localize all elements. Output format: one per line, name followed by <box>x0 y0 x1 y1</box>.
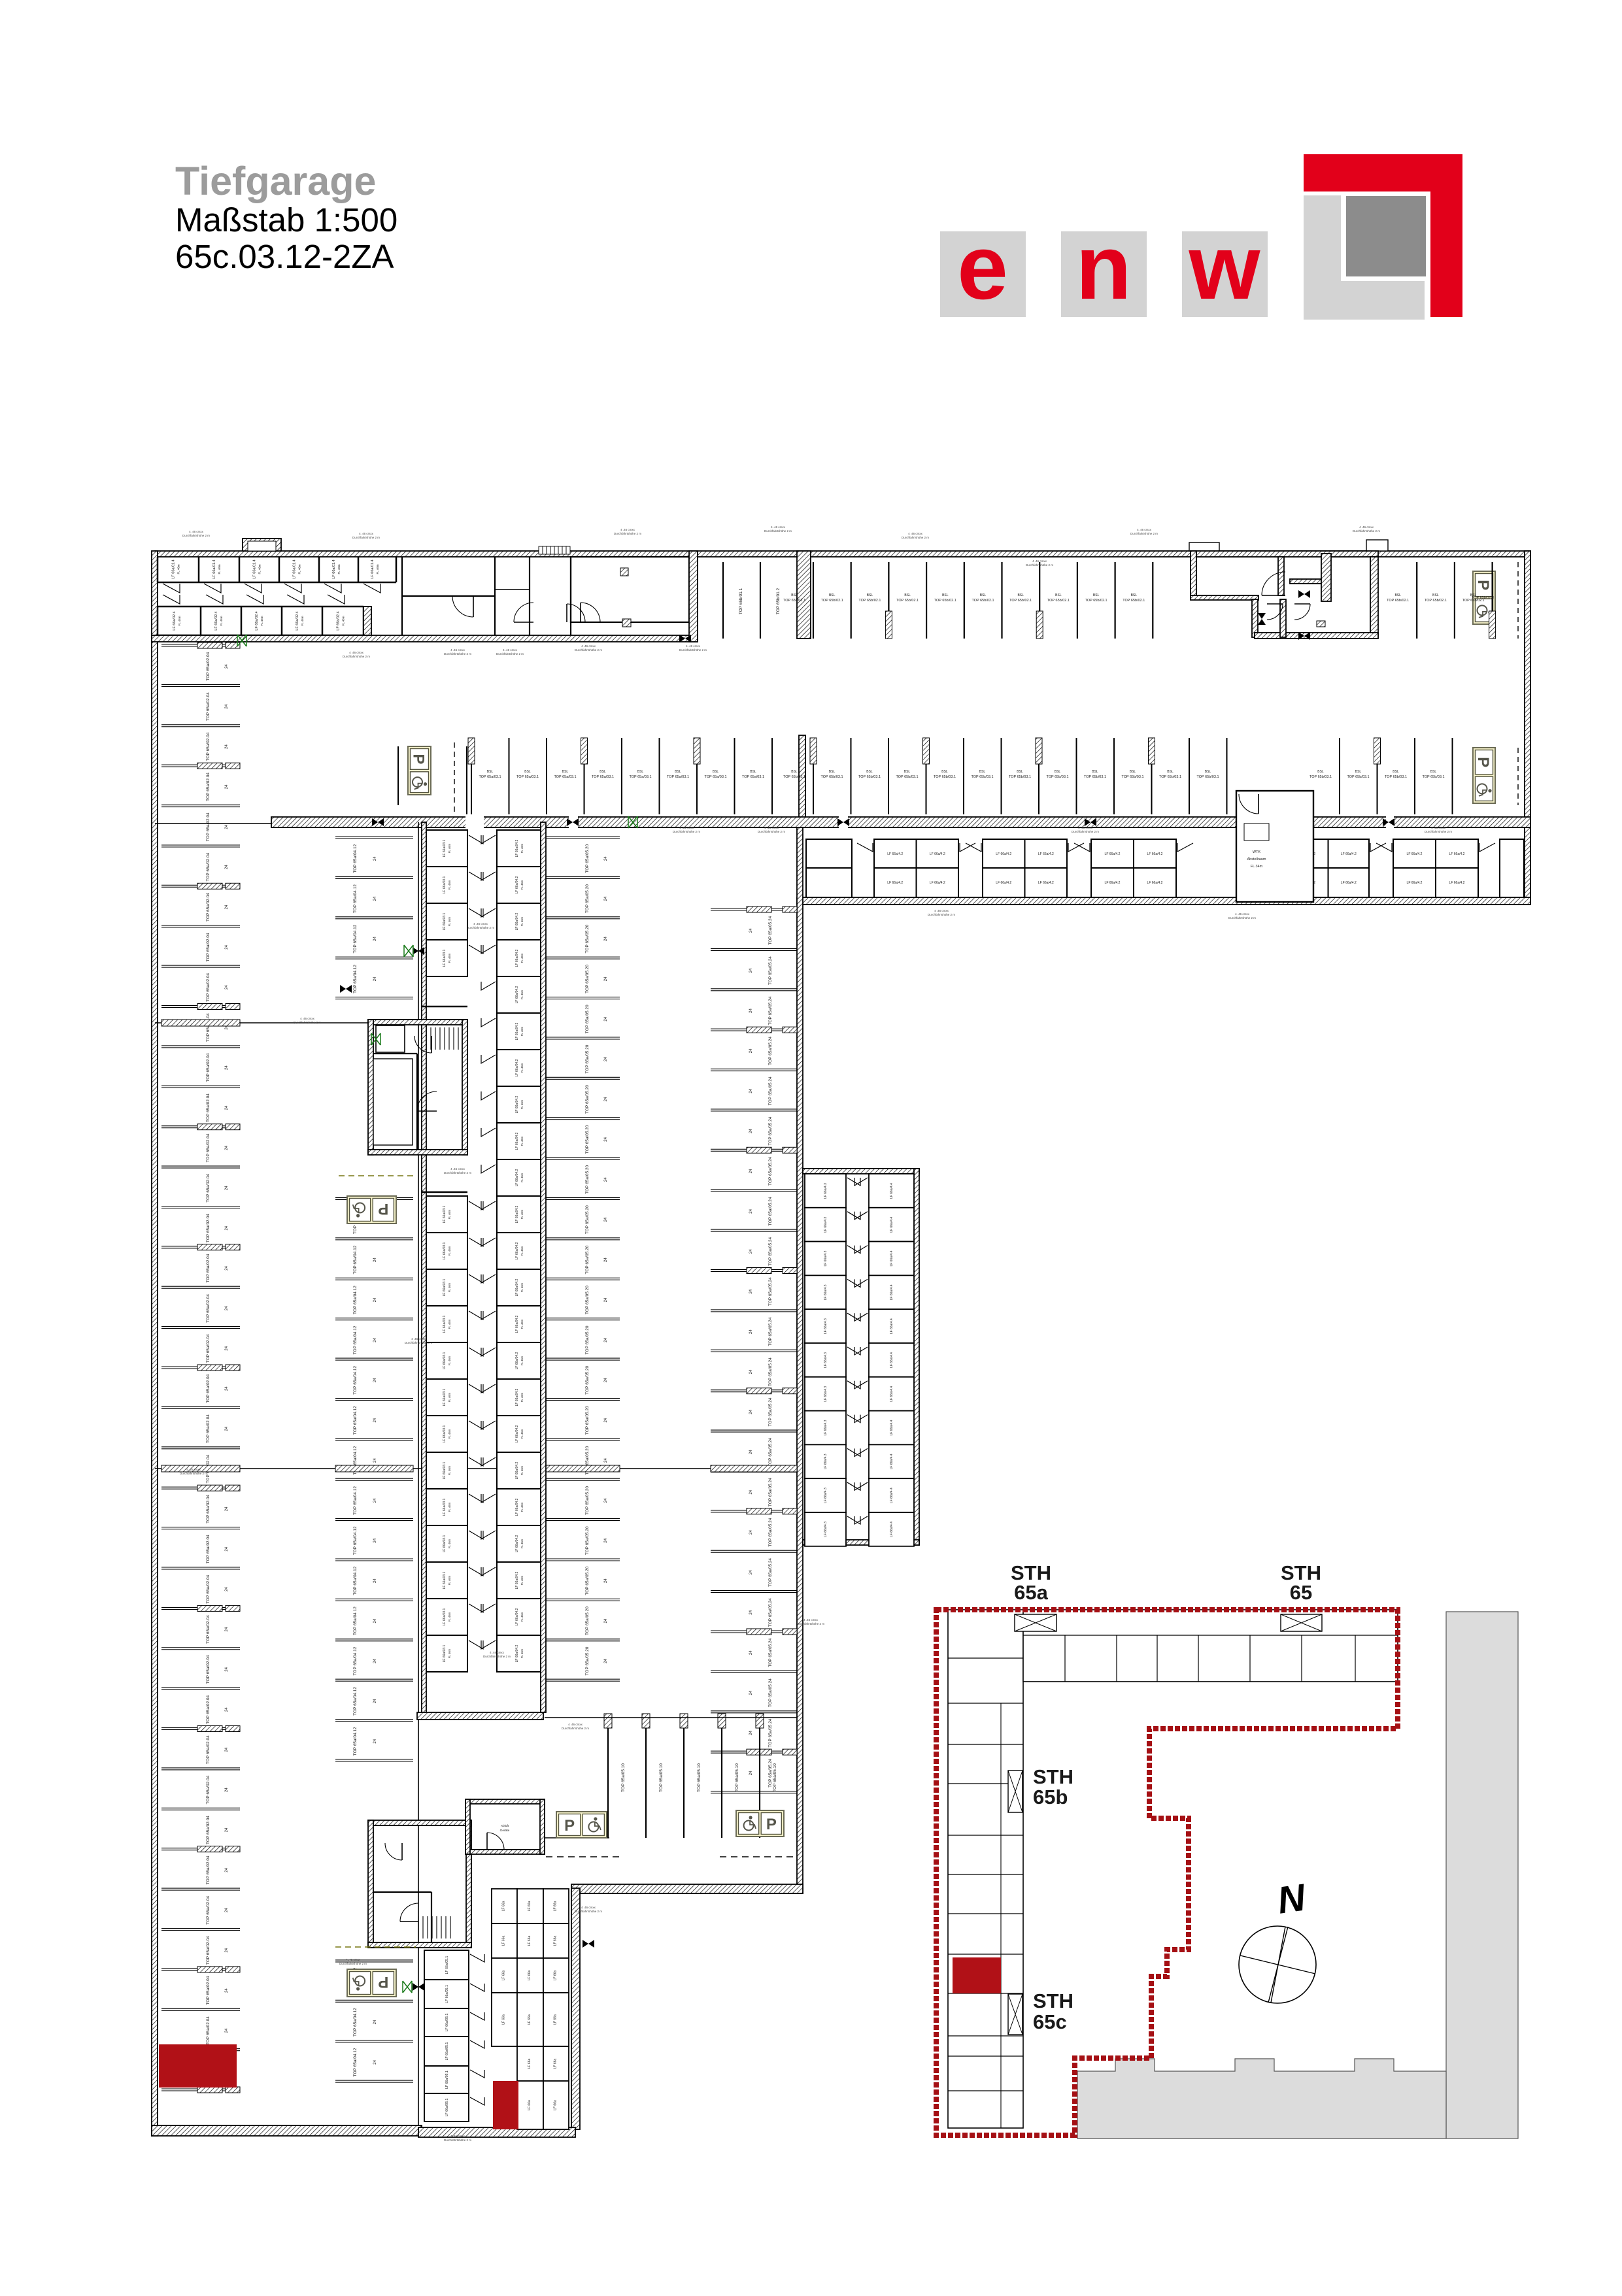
svg-text:4 .46 cmxx: 4 .46 cmxx <box>450 2135 465 2138</box>
svg-text:FL 46m: FL 46m <box>520 1246 524 1256</box>
svg-text:FL 46m: FL 46m <box>520 1173 524 1182</box>
svg-text:BSL: BSL <box>904 770 911 774</box>
svg-text:BSL: BSL <box>1017 770 1023 774</box>
svg-text:Durchfahrtshöhe 2 m: Durchfahrtshöhe 2 m <box>352 536 380 539</box>
svg-text:4 .46 cmxx: 4 .46 cmxx <box>1032 559 1047 563</box>
svg-text:FL 46m: FL 46m <box>520 1429 524 1439</box>
svg-text:TOP 65a/05.24: TOP 65a/05.24 <box>768 1718 773 1747</box>
svg-text:BSL: BSL <box>867 593 873 597</box>
svg-text:TOP 65a/05.20: TOP 65a/05.20 <box>585 1486 590 1515</box>
svg-text:TOP 65a/05.24: TOP 65a/05.24 <box>768 1598 773 1627</box>
svg-text:24: 24 <box>225 1186 229 1190</box>
svg-text:BSL: BSL <box>1092 770 1098 774</box>
svg-text:24: 24 <box>225 944 229 949</box>
svg-text:TOP 65b/03.1: TOP 65b/03.1 <box>1347 775 1369 779</box>
svg-text:24: 24 <box>604 1097 608 1101</box>
svg-text:65c: 65c <box>1033 2010 1067 2033</box>
svg-text:24: 24 <box>749 1249 753 1254</box>
svg-text:24: 24 <box>225 1867 229 1872</box>
svg-text:24: 24 <box>225 664 229 669</box>
svg-text:TOP 65a/05.20: TOP 65a/05.20 <box>585 1085 590 1114</box>
svg-text:LF 66a/4.2: LF 66a/4.2 <box>1449 881 1465 885</box>
svg-text:LF 66a/03.1: LF 66a/03.1 <box>443 1388 447 1406</box>
svg-text:24: 24 <box>373 1578 377 1583</box>
svg-text:BSL: BSL <box>1055 593 1062 597</box>
svg-text:FL 46m: FL 46m <box>520 1539 524 1548</box>
svg-text:FL 46m: FL 46m <box>448 1612 451 1622</box>
svg-text:24: 24 <box>749 1289 753 1293</box>
svg-text:LF 66a: LF 66a <box>502 1971 506 1981</box>
svg-text:TOP 65a/05.24: TOP 65a/05.24 <box>768 1116 773 1145</box>
svg-text:LF 66a/4.2: LF 66a/4.2 <box>1341 881 1357 885</box>
svg-text:Durchfahrtshöhe 2 m: Durchfahrtshöhe 2 m <box>343 655 370 658</box>
svg-text:LF 66a/01.4: LF 66a/01.4 <box>332 559 336 578</box>
svg-text:FL 46m: FL 46m <box>376 564 379 574</box>
svg-text:24: 24 <box>604 1217 608 1222</box>
svg-text:LF 66a/02.4: LF 66a/02.4 <box>255 611 259 630</box>
svg-text:TOP 65a/02.04: TOP 65a/02.04 <box>206 2016 211 2045</box>
svg-text:FL 46m: FL 46m <box>298 564 301 574</box>
svg-text:LF 66a: LF 66a <box>528 1971 532 1981</box>
svg-text:n: n <box>1075 216 1132 318</box>
svg-text:LF 66a/05.1: LF 66a/05.1 <box>445 2099 449 2117</box>
svg-text:LF 66a/04.2: LF 66a/04.2 <box>515 1608 519 1625</box>
svg-text:24: 24 <box>373 1739 377 1743</box>
svg-text:24: 24 <box>749 968 753 973</box>
svg-text:Durchfahrtshöhe 2 m: Durchfahrtshöhe 2 m <box>928 913 955 916</box>
svg-text:TOP 65b/03.1: TOP 65b/03.1 <box>858 775 881 779</box>
svg-text:TOP 65a/05.10: TOP 65a/05.10 <box>697 1763 701 1792</box>
svg-text:BSL: BSL <box>713 770 719 774</box>
svg-text:LF 66a: LF 66a <box>502 1936 506 1946</box>
svg-text:24: 24 <box>749 1731 753 1735</box>
svg-text:FL 46m: FL 46m <box>520 1648 524 1658</box>
svg-text:TOP 65a/05.20: TOP 65a/05.20 <box>585 1566 590 1595</box>
svg-text:TOP 65a/05.24: TOP 65a/05.24 <box>768 1317 773 1346</box>
svg-text:P: P <box>1474 580 1492 590</box>
svg-text:LF 66a/05.1: LF 66a/05.1 <box>445 2071 449 2089</box>
svg-text:24: 24 <box>225 1747 229 1752</box>
svg-text:FL 46m: FL 46m <box>448 1539 451 1548</box>
svg-text:4 .46 cmxx: 4 .46 cmxx <box>359 532 374 535</box>
svg-text:4 .46 cmxx: 4 .46 cmxx <box>186 1468 201 1471</box>
svg-text:24: 24 <box>225 1386 229 1391</box>
svg-text:FL 46m: FL 46m <box>520 1099 524 1109</box>
svg-text:FL 46m: FL 46m <box>260 616 263 625</box>
svg-text:65a: 65a <box>1014 1581 1048 1604</box>
svg-text:24: 24 <box>225 1707 229 1712</box>
svg-text:TOP 65a/05.20: TOP 65a/05.20 <box>585 1646 590 1675</box>
svg-text:4 .46 cmxx: 4 .46 cmxx <box>450 648 465 652</box>
svg-text:LF 66a/04.2: LF 66a/04.2 <box>515 1571 519 1589</box>
svg-text:LF 66a/4.2: LF 66a/4.2 <box>930 881 945 885</box>
svg-text:LF 66a/4.2: LF 66a/4.2 <box>1038 852 1054 856</box>
svg-text:TOP 65a/02.04: TOP 65a/02.04 <box>206 1655 211 1684</box>
svg-text:LF 66a/4.2: LF 66a/4.2 <box>1407 881 1423 885</box>
svg-text:LF 66a/04.2: LF 66a/04.2 <box>515 1132 519 1150</box>
svg-text:TOP 65a/05.20: TOP 65a/05.20 <box>585 1606 590 1635</box>
svg-text:24: 24 <box>373 856 377 861</box>
svg-text:24: 24 <box>225 784 229 789</box>
svg-text:TOP 65b/03.1: TOP 65b/03.1 <box>1046 775 1068 779</box>
svg-text:4 .46 cmxx: 4 .46 cmxx <box>346 1958 361 1961</box>
svg-text:4 .46 cmxx: 4 .46 cmxx <box>300 1017 315 1020</box>
svg-text:LF 66a/01.4: LF 66a/01.4 <box>172 559 176 578</box>
svg-text:LF 66a/02.4: LF 66a/02.4 <box>214 611 218 630</box>
svg-text:TOP 65a/02.04: TOP 65a/02.04 <box>206 1775 211 1804</box>
svg-text:LF 66a/4.3: LF 66a/4.3 <box>824 1318 828 1334</box>
svg-text:24: 24 <box>604 1257 608 1262</box>
svg-text:FL 46m: FL 46m <box>301 616 304 625</box>
svg-text:LF 66a/03.1: LF 66a/03.1 <box>443 1425 447 1442</box>
svg-text:TOP 65b/03.1: TOP 65b/03.1 <box>934 775 956 779</box>
svg-text:TOP 65b/01.1: TOP 65b/01.1 <box>739 588 743 615</box>
svg-text:LF 66a/04.2: LF 66a/04.2 <box>515 1498 519 1516</box>
svg-text:TOP 65a/02.04: TOP 65a/02.04 <box>206 973 211 1001</box>
svg-text:TOP 65a/03.1: TOP 65a/03.1 <box>516 775 539 779</box>
svg-text:BSL: BSL <box>904 593 911 597</box>
svg-text:LF 66a/4.2: LF 66a/4.2 <box>930 852 945 856</box>
svg-text:FL 46m: FL 46m <box>218 564 221 574</box>
svg-text:BSL: BSL <box>524 770 531 774</box>
svg-text:TOP 65b/02.1: TOP 65b/02.1 <box>858 599 881 603</box>
svg-text:LF 66a/4.3: LF 66a/4.3 <box>824 1488 828 1503</box>
svg-text:TOP 65a/03.1: TOP 65a/03.1 <box>742 775 764 779</box>
svg-text:TOP 65a/05.20: TOP 65a/05.20 <box>585 1245 590 1274</box>
svg-text:LF 66a/04.2: LF 66a/04.2 <box>515 986 519 1003</box>
svg-text:TOP 65a/02.04: TOP 65a/02.04 <box>206 1173 211 1202</box>
svg-text:FL 46m: FL 46m <box>520 1063 524 1073</box>
svg-text:Durchfahrtshöhe 2 m: Durchfahrtshöhe 2 m <box>180 1472 207 1475</box>
svg-text:4 .46 cmxx: 4 .46 cmxx <box>349 651 364 654</box>
svg-text:24: 24 <box>225 824 229 829</box>
svg-text:LF 66a/4.2: LF 66a/4.2 <box>996 881 1011 885</box>
svg-text:24: 24 <box>604 976 608 981</box>
svg-text:LF 66a/4.4: LF 66a/4.4 <box>890 1420 894 1435</box>
svg-text:LF 66a/02.4: LF 66a/02.4 <box>173 611 177 630</box>
svg-text:FL 46m: FL 46m <box>520 880 524 890</box>
svg-text:Durchfahrtshöhe 2 m: Durchfahrtshöhe 2 m <box>1228 916 1256 920</box>
svg-text:TOP 65a/02.04: TOP 65a/02.04 <box>206 1334 211 1363</box>
svg-text:Durchfahrtshöhe 2 m: Durchfahrtshöhe 2 m <box>339 1962 367 1965</box>
svg-text:LF 66a/03.1: LF 66a/03.1 <box>443 1571 447 1589</box>
svg-text:FL 46m: FL 46m <box>258 564 262 574</box>
svg-text:LF 66a/4.4: LF 66a/4.4 <box>890 1386 894 1402</box>
svg-text:LF 66a: LF 66a <box>528 1936 532 1946</box>
svg-text:TOP 65a/04.12: TOP 65a/04.12 <box>353 844 358 873</box>
svg-text:24: 24 <box>373 1337 377 1342</box>
svg-text:LF 66a/03.1: LF 66a/03.1 <box>443 1315 447 1333</box>
svg-text:TOP 65a/04.12: TOP 65a/04.12 <box>353 924 358 953</box>
svg-text:TOP 65a/05.20: TOP 65a/05.20 <box>585 884 590 913</box>
svg-text:Abluft: Abluft <box>501 1824 509 1828</box>
svg-text:24: 24 <box>373 976 377 981</box>
svg-text:LF 66a: LF 66a <box>502 1901 506 1912</box>
svg-text:LF 66a: LF 66a <box>554 1901 558 1912</box>
svg-text:TOP 65b/03.1: TOP 65b/03.1 <box>1196 775 1219 779</box>
svg-text:LF 66a/4.2: LF 66a/4.2 <box>1038 881 1054 885</box>
svg-text:24: 24 <box>225 704 229 708</box>
svg-text:BSL: BSL <box>1394 593 1401 597</box>
svg-text:24: 24 <box>225 744 229 749</box>
svg-text:24: 24 <box>604 1498 608 1503</box>
svg-text:P: P <box>378 1973 388 1991</box>
svg-text:TOP 65a/02.04: TOP 65a/02.04 <box>206 1735 211 1764</box>
svg-text:LF 66a/03.1: LF 66a/03.1 <box>443 912 447 930</box>
svg-text:TOP 65a/03.1: TOP 65a/03.1 <box>554 775 576 779</box>
svg-text:TOP 65a/02.04: TOP 65a/02.04 <box>206 893 211 922</box>
svg-text:Tiefgarage: Tiefgarage <box>175 159 376 203</box>
svg-text:FL 46m: FL 46m <box>448 1209 451 1219</box>
svg-text:FL 46m: FL 46m <box>448 1575 451 1585</box>
svg-text:Durchfahrtshöhe 2 m: Durchfahrtshöhe 2 m <box>764 529 792 533</box>
svg-text:FL 46m: FL 46m <box>520 843 524 853</box>
svg-text:LF 66a/04.2: LF 66a/04.2 <box>515 1644 519 1662</box>
svg-text:TOP 65b/02.1: TOP 65b/02.1 <box>1387 599 1409 603</box>
svg-text:24: 24 <box>604 856 608 861</box>
svg-text:LF 66a/4.4: LF 66a/4.4 <box>890 1488 894 1503</box>
svg-text:TOP 65a/05.24: TOP 65a/05.24 <box>768 1157 773 1186</box>
svg-text:LF 66a/4.3: LF 66a/4.3 <box>824 1217 828 1233</box>
svg-text:LF 66a/04.2: LF 66a/04.2 <box>515 1205 519 1223</box>
svg-text:Durchfahrtshöhe 2 m: Durchfahrtshöhe 2 m <box>575 1910 602 1913</box>
svg-text:LF 66a/01.4: LF 66a/01.4 <box>371 559 375 578</box>
svg-text:FL 46m: FL 46m <box>520 1502 524 1512</box>
svg-text:24: 24 <box>225 1988 229 1993</box>
svg-text:LF 66a/4.2: LF 66a/4.2 <box>887 881 903 885</box>
svg-text:BSL: BSL <box>979 770 986 774</box>
svg-text:TOP 65b/03.1: TOP 65b/03.1 <box>1084 775 1106 779</box>
svg-text:TOP 65a/05.24: TOP 65a/05.24 <box>768 1558 773 1587</box>
svg-text:65b: 65b <box>1033 1786 1068 1808</box>
svg-text:FL 46m: FL 46m <box>520 1356 524 1365</box>
svg-text:TOP 65a/05.24: TOP 65a/05.24 <box>768 1678 773 1707</box>
svg-text:TOP 65a/05.10: TOP 65a/05.10 <box>621 1763 626 1792</box>
svg-text:4 .46 cmxx: 4 .46 cmxx <box>568 1723 583 1726</box>
svg-text:24: 24 <box>225 1788 229 1792</box>
svg-text:TOP 65a/05.20: TOP 65a/05.20 <box>585 965 590 993</box>
svg-text:TOP 65a/05.24: TOP 65a/05.24 <box>768 996 773 1025</box>
svg-text:LF 66a/4.3: LF 66a/4.3 <box>824 1420 828 1435</box>
svg-text:FL 46m: FL 46m <box>520 1319 524 1329</box>
svg-text:Durchfahrtshöhe 2 m: Durchfahrtshöhe 2 m <box>444 2138 471 2142</box>
svg-text:24: 24 <box>373 1699 377 1703</box>
svg-text:24: 24 <box>225 1667 229 1671</box>
svg-text:BSL: BSL <box>1432 593 1439 597</box>
svg-text:TOP 65a/02.04: TOP 65a/02.04 <box>206 1414 211 1443</box>
svg-text:LF 66a/01.4: LF 66a/01.4 <box>253 559 257 578</box>
svg-text:BSL: BSL <box>1167 770 1174 774</box>
svg-text:TOP 65a/05.20: TOP 65a/05.20 <box>585 1125 590 1154</box>
svg-text:TOP 65a/05.24: TOP 65a/05.24 <box>768 1518 773 1546</box>
svg-text:24: 24 <box>749 1771 753 1775</box>
svg-text:24: 24 <box>373 2059 377 2064</box>
svg-text:FL 46m: FL 46m <box>520 1026 524 1036</box>
svg-text:TOP 65a/02.04: TOP 65a/02.04 <box>206 773 211 801</box>
svg-text:BSL: BSL <box>941 770 948 774</box>
svg-text:LF 66a/4.4: LF 66a/4.4 <box>890 1522 894 1537</box>
svg-text:Durchfahrtshöhe 2 m: Durchfahrtshöhe 2 m <box>562 1727 589 1730</box>
svg-text:4 .46 cmxx: 4 .46 cmxx <box>764 826 779 829</box>
svg-text:P: P <box>564 1817 575 1835</box>
svg-text:TOP 65b/02.1: TOP 65b/02.1 <box>783 599 805 603</box>
svg-text:24: 24 <box>225 1506 229 1511</box>
svg-text:24: 24 <box>373 1498 377 1503</box>
svg-text:LF 66a/4.4: LF 66a/4.4 <box>890 1318 894 1334</box>
svg-text:BSL: BSL <box>675 770 681 774</box>
svg-text:LF 66a/4.2: LF 66a/4.2 <box>996 852 1011 856</box>
svg-text:24: 24 <box>749 1048 753 1053</box>
svg-text:FL 46m: FL 46m <box>448 1502 451 1512</box>
svg-text:24: 24 <box>373 1418 377 1422</box>
svg-text:24: 24 <box>225 1145 229 1150</box>
svg-text:4 .46 cmxx: 4 .46 cmxx <box>771 525 786 529</box>
svg-text:TOP 65a/02.04: TOP 65a/02.04 <box>206 933 211 961</box>
svg-text:24: 24 <box>225 1827 229 1832</box>
svg-text:24: 24 <box>749 1208 753 1213</box>
svg-text:LF 66a: LF 66a <box>554 2059 558 2069</box>
svg-text:BSL: BSL <box>600 770 606 774</box>
svg-text:LF 66a/03.1: LF 66a/03.1 <box>443 1242 447 1259</box>
svg-text:Durchfahrtshöhe 2 m: Durchfahrtshöhe 2 m <box>294 1021 321 1024</box>
svg-text:24: 24 <box>749 928 753 933</box>
svg-text:LF 66a: LF 66a <box>554 2100 558 2110</box>
svg-text:LF 66a/4.4: LF 66a/4.4 <box>890 1352 894 1368</box>
svg-text:TOP 65a/02.04: TOP 65a/02.04 <box>206 1816 211 1844</box>
svg-text:24: 24 <box>225 865 229 869</box>
svg-text:BSL: BSL <box>1131 593 1138 597</box>
svg-text:LF 66a/4.3: LF 66a/4.3 <box>824 1522 828 1537</box>
svg-text:FL 46m: FL 46m <box>520 1282 524 1292</box>
svg-text:24: 24 <box>225 1908 229 1912</box>
svg-text:24: 24 <box>604 1057 608 1061</box>
svg-text:24: 24 <box>749 1409 753 1414</box>
svg-text:TOP 65b/02.1: TOP 65b/02.1 <box>821 599 843 603</box>
svg-text:FL 46m: FL 46m <box>448 1282 451 1292</box>
svg-text:4 .46 cmxx: 4 .46 cmxx <box>934 909 949 912</box>
svg-text:STH: STH <box>1033 1765 1073 1788</box>
svg-text:LF 66a/05.1: LF 66a/05.1 <box>445 2014 449 2032</box>
svg-text:LF 66a/04.2: LF 66a/04.2 <box>515 1278 519 1296</box>
svg-text:24: 24 <box>373 1538 377 1542</box>
svg-text:4 .46 cmxx: 4 .46 cmxx <box>189 530 204 533</box>
svg-text:BSL: BSL <box>791 593 798 597</box>
svg-text:FL 46m: FL 46m <box>520 1209 524 1219</box>
svg-text:FL 46m: FL 46m <box>520 1612 524 1622</box>
svg-text:24: 24 <box>604 1659 608 1663</box>
svg-text:24: 24 <box>225 2028 229 2033</box>
svg-text:24: 24 <box>225 985 229 990</box>
svg-text:LF 66a/04.2: LF 66a/04.2 <box>515 1388 519 1406</box>
svg-text:24: 24 <box>604 1458 608 1463</box>
svg-text:TOP 65a/02.04: TOP 65a/02.04 <box>206 1053 211 1082</box>
svg-text:4 .46 cmxx: 4 .46 cmxx <box>679 826 694 829</box>
svg-text:BSL: BSL <box>1355 770 1362 774</box>
svg-text:24: 24 <box>749 1450 753 1454</box>
svg-text:LF 66a/4.3: LF 66a/4.3 <box>824 1284 828 1300</box>
svg-text:TOP 65a/03.1: TOP 65a/03.1 <box>592 775 614 779</box>
svg-text:24: 24 <box>749 1690 753 1695</box>
svg-text:TOP 65a/05.10: TOP 65a/05.10 <box>773 1763 777 1792</box>
svg-text:24: 24 <box>373 1257 377 1262</box>
svg-text:24: 24 <box>373 1297 377 1302</box>
svg-text:BSL: BSL <box>1093 593 1100 597</box>
svg-text:BSL: BSL <box>1205 770 1211 774</box>
svg-text:4 .46 cmxx: 4 .46 cmxx <box>1137 528 1152 531</box>
svg-text:TOP 65a/05.24: TOP 65a/05.24 <box>768 1277 773 1306</box>
svg-text:LF 66a/04.2: LF 66a/04.2 <box>515 1535 519 1552</box>
svg-text:24: 24 <box>373 1659 377 1663</box>
svg-text:4 .46 cmxx: 4 .46 cmxx <box>803 1618 819 1622</box>
svg-text:BSL: BSL <box>637 770 644 774</box>
svg-text:Durchfahrtshöhe 2 m: Durchfahrtshöhe 2 m <box>1026 563 1053 567</box>
svg-text:LF 66a/04.2: LF 66a/04.2 <box>515 876 519 893</box>
svg-text:LF 66a/05.1: LF 66a/05.1 <box>445 1956 449 1974</box>
svg-text:TOP 65a/02.04: TOP 65a/02.04 <box>206 1013 211 1042</box>
svg-text:BSL: BSL <box>791 770 798 774</box>
svg-text:LF 66a/4.2: LF 66a/4.2 <box>887 852 903 856</box>
svg-text:LF 66a/04.2: LF 66a/04.2 <box>515 839 519 857</box>
svg-text:TOP 65b/02.1: TOP 65b/02.1 <box>972 599 994 603</box>
svg-text:Durchfahrtshöhe 2 m: Durchfahrtshöhe 2 m <box>483 1655 511 1658</box>
svg-text:24: 24 <box>604 1337 608 1342</box>
svg-text:LF 66a/4.4: LF 66a/4.4 <box>890 1454 894 1469</box>
svg-text:LF 66a/04.2: LF 66a/04.2 <box>515 1059 519 1076</box>
svg-text:FL 46m: FL 46m <box>448 1429 451 1439</box>
svg-text:TOP 65a/05.24: TOP 65a/05.24 <box>768 956 773 985</box>
svg-text:TOP 65a/02.04: TOP 65a/02.04 <box>206 1093 211 1122</box>
svg-text:Durchfahrtshöhe 2 m: Durchfahrtshöhe 2 m <box>797 1622 824 1625</box>
svg-text:4 .46 cmxx: 4 .46 cmxx <box>1359 525 1374 529</box>
svg-text:4 .46 cmxx: 4 .46 cmxx <box>1078 826 1093 829</box>
svg-text:BSL: BSL <box>942 593 949 597</box>
svg-text:4 .46 cmxx: 4 .46 cmxx <box>620 528 635 531</box>
svg-text:TOP 65a/02.04: TOP 65a/02.04 <box>206 1495 211 1523</box>
svg-text:TOP 65a/05.20: TOP 65a/05.20 <box>585 1205 590 1234</box>
svg-text:Durchfahrtshöhe 2 m: Durchfahrtshöhe 2 m <box>679 648 707 652</box>
svg-text:65c.03.12-2ZA: 65c.03.12-2ZA <box>175 238 394 275</box>
svg-text:Durchfahrtshöhe 2 m: Durchfahrtshöhe 2 m <box>902 536 929 539</box>
svg-text:24: 24 <box>604 1016 608 1021</box>
svg-text:TOP 65a/04.12: TOP 65a/04.12 <box>353 1526 358 1555</box>
svg-text:TOP 65b/03.1: TOP 65b/03.1 <box>1121 775 1143 779</box>
svg-text:FL 46m: FL 46m <box>520 1465 524 1475</box>
svg-text:LF 66a/03.1: LF 66a/03.1 <box>443 1205 447 1223</box>
svg-text:Geräte: Geräte <box>500 1829 510 1833</box>
svg-text:TOP 65a/05.24: TOP 65a/05.24 <box>768 1478 773 1506</box>
svg-text:TOP 65b/02.1: TOP 65b/02.1 <box>1047 599 1070 603</box>
svg-text:TOP 65a/03.1: TOP 65a/03.1 <box>479 775 501 779</box>
svg-text:BSL: BSL <box>750 770 756 774</box>
svg-text:P: P <box>1474 757 1492 767</box>
svg-text:LF 66a/03.1: LF 66a/03.1 <box>443 839 447 857</box>
svg-text:TOP 65a/02.04: TOP 65a/02.04 <box>206 1535 211 1563</box>
svg-text:LF 66a/04.2: LF 66a/04.2 <box>515 949 519 967</box>
svg-text:FL 46m: FL 46m <box>342 616 345 625</box>
svg-text:TOP 65a/03.1: TOP 65a/03.1 <box>629 775 651 779</box>
svg-text:LF 66a/4.2: LF 66a/4.2 <box>1147 852 1163 856</box>
svg-text:Durchfahrtshöhe 2 m: Durchfahrtshöhe 2 m <box>1072 830 1099 833</box>
svg-text:24: 24 <box>373 2020 377 2024</box>
svg-text:LF 66a/03.1: LF 66a/03.1 <box>443 1461 447 1479</box>
svg-text:TOP 65b/03.1: TOP 65b/03.1 <box>1009 775 1031 779</box>
svg-text:TOP 65a/02.04: TOP 65a/02.04 <box>206 1976 211 2005</box>
svg-text:FL 46m: FL 46m <box>178 616 181 625</box>
svg-text:LF 66a: LF 66a <box>528 1901 532 1912</box>
svg-text:w: w <box>1189 216 1261 318</box>
svg-text:TOP 65a/02.04: TOP 65a/02.04 <box>206 1695 211 1723</box>
svg-text:Durchfahrtshöhe 2 m: Durchfahrtshöhe 2 m <box>496 652 524 656</box>
